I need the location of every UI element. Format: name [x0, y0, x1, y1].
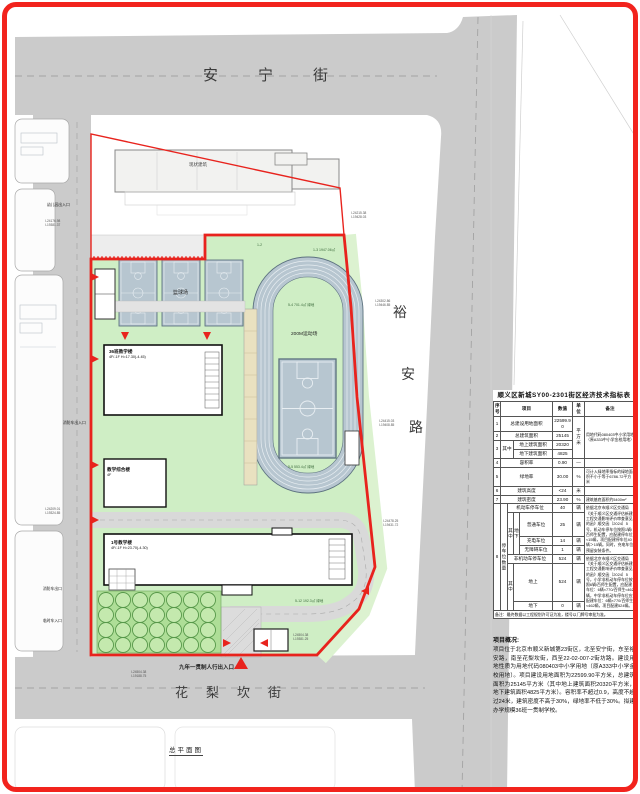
green-area-tag: 5-12 192.3㎡ 绿地	[295, 599, 323, 604]
table-title: 顺义区新城SY00-2301街区经济技术指标表	[493, 390, 635, 399]
existing-building	[115, 150, 339, 215]
courts-label: 篮球场	[173, 291, 188, 297]
upper-walkway	[104, 301, 245, 312]
main-entrance-label: 九年一贯制人行出入口	[179, 665, 234, 671]
table-row: 7建筑密度 23.90% 建筑基底面积约5400m²	[494, 495, 636, 504]
boundary-coordinate-label: I-24176.98 I-19381.37	[45, 219, 60, 227]
boundary-coordinate-label: I-24415.03 I-19408.85	[379, 419, 394, 427]
infield-basketball-court	[279, 359, 336, 458]
street-name-east-char: 裕	[393, 305, 407, 320]
track-label: 200M运动场	[291, 332, 317, 337]
street-name-east-char: 路	[409, 420, 423, 435]
building-c-label: 1号教学楼 4F/-1F H=23.70(-4.30)	[111, 540, 148, 550]
notes-title: 项目概况:	[493, 635, 635, 644]
boundary-coordinate-label: I-24478.25 I-19431.72	[383, 519, 398, 527]
existing-building-label: 现状建筑	[189, 163, 207, 168]
boundary-coordinate-label: I-24504.38 I-19188.75	[131, 670, 146, 678]
east-small-structure	[345, 431, 359, 465]
basketball-court-3	[205, 260, 243, 326]
boundary-coordinate-label: I-24209.01 I-19324.85	[45, 507, 60, 515]
temp-entrance-label: 临时车入口	[43, 619, 62, 623]
green-area-tag: 1-3 1947.06㎡	[313, 248, 335, 253]
project-notes: 项目概况: 项目位于北京市顺义新城第23街区，北至安宁街，东至裕安路，南至花梨坎…	[493, 635, 635, 715]
site-plan-sheet: 安宁街 花梨坎街 裕 安 路 现状建筑 篮球场 200M运动场 36班教学楼 4…	[0, 0, 640, 794]
table-row: 4容积率 0.90—	[494, 458, 636, 467]
basketball-court-1	[119, 260, 157, 326]
table-row: 6建筑高度 <24米	[494, 486, 636, 495]
street-name-south: 花梨坎街	[175, 686, 299, 700]
indicator-panel: 顺义区新城SY00-2301街区经济技术指标表 序号 项目 数值 单位 备注 1…	[493, 390, 635, 619]
fire-exit-label: 消防车出口	[43, 587, 62, 591]
table-row: 非机动车停车位 524 辆 依据北京市顺义区交通局《关于顺义区交通评估新建工程交…	[494, 554, 636, 563]
pavilion	[109, 569, 135, 590]
notes-body: 项目位于北京市顺义新城第23街区，北至安宁街，东至裕安路，南至花梨坎街，西至22…	[493, 646, 635, 715]
boundary-coordinate-label: I-24215.38 I-19428.03	[351, 211, 366, 219]
table-row: 5绿地率 30.00% 可计入绿地率指标的绿地面积不小于等于6786.72平方米	[494, 467, 636, 486]
table-header-row: 序号 项目 数值 单位 备注	[494, 402, 636, 417]
boundary-coordinate-label: I-24302.86 I-19446.85	[375, 299, 390, 307]
building-a-label: 36班教学楼 4F/-1F H=17.30(-4.45)	[109, 349, 146, 359]
table-row: 1总建设用地面积 22599.90 平方米 用地代码080403中小学用地（原A…	[494, 416, 636, 431]
red-border-frame: 安宁街 花梨坎街 裕 安 路 现状建筑 篮球场 200M运动场 36班教学楼 4…	[2, 2, 638, 792]
kindergarten-entrance-label: 幼儿园出入口	[47, 203, 70, 207]
green-area-tag: 5-5 553.4㎡ 绿地	[288, 465, 314, 470]
table-footnote-row: 备注：最终数据以工程规划许可证为准，楼号以门牌号审批为准。	[494, 610, 636, 618]
north-walk-strip	[91, 235, 205, 259]
drawing-title: 总平面图	[169, 744, 203, 756]
table-row-parking: 8 停车位数量 机动车停车位 40 辆 依据北京市顺义区交通局《关于顺义区交通评…	[494, 504, 636, 513]
green-area-tag: 1-2	[257, 243, 262, 247]
street-name-east-char: 安	[401, 367, 415, 382]
boundary-coordinate-label: I-24504.38 I-19381.25	[293, 633, 308, 641]
indicator-table: 序号 项目 数值 单位 备注 1总建设用地面积 22599.90 平方米 用地代…	[493, 401, 636, 619]
fire-entrance-label: 消防车出入口	[63, 421, 86, 425]
street-name-north: 安宁街	[203, 68, 368, 85]
building-b-label: 教学综合楼 4F	[107, 467, 130, 477]
green-area-tag: 5-4 701.4㎡ 绿地	[288, 303, 314, 308]
stands-strip	[244, 309, 257, 485]
teaching-building-c	[104, 528, 352, 595]
